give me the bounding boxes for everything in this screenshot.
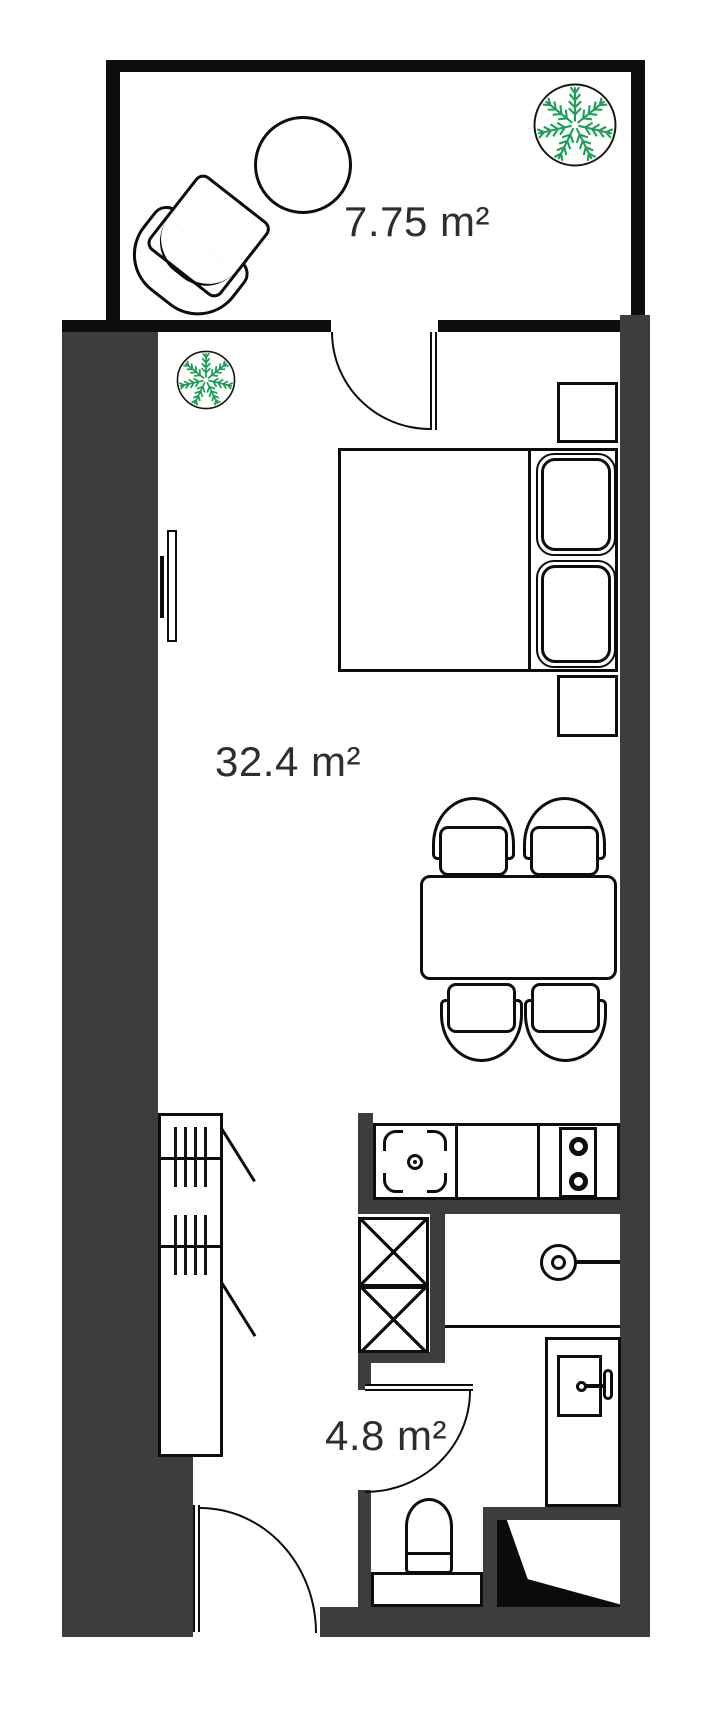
- tv-mount: [160, 556, 164, 618]
- sink-gap: [380, 1151, 388, 1173]
- dining-table: [420, 875, 617, 980]
- shower-wall-left: [483, 1507, 497, 1607]
- sink-drain-dot: [413, 1160, 417, 1164]
- chair: [440, 981, 523, 1062]
- armchair: [119, 168, 280, 333]
- vanity-edge: [445, 1325, 620, 1328]
- left-wall-entry-block: [158, 1457, 193, 1637]
- burner-icon: [569, 1137, 588, 1156]
- bed-headboard-divider: [528, 448, 531, 672]
- chair: [524, 981, 607, 1062]
- potted-plant-icon: [531, 81, 619, 169]
- balcony-right-wall: [631, 60, 645, 315]
- wardrobe-door-swing: [220, 1128, 255, 1182]
- entrance-door-leaf: [193, 1505, 200, 1632]
- washbasin-faucet: [575, 1260, 620, 1264]
- kitchen-wall-stub: [358, 1113, 373, 1203]
- cabinet-handle-bar: [603, 1369, 613, 1400]
- top-wall-right-segment: [438, 320, 620, 332]
- chair: [523, 797, 606, 878]
- shower-wall-top: [483, 1507, 620, 1520]
- shower: [497, 1520, 620, 1607]
- living-room-area-label: 32.4 m²: [215, 738, 361, 786]
- entrance-door-swing-arc: [200, 1507, 317, 1633]
- ventilation-shaft: [358, 1286, 429, 1353]
- bathroom-door-leaf: [365, 1384, 473, 1391]
- balcony-top-wall: [106, 60, 645, 72]
- sink-gap: [439, 1151, 447, 1173]
- bathroom-area-label: 4.8 m²: [325, 1412, 447, 1460]
- wardrobe-hangers: [174, 1127, 212, 1187]
- bathroom-left-wall-lower: [358, 1490, 371, 1607]
- left-wall: [62, 332, 158, 1637]
- balcony-door-swing-arc: [331, 332, 430, 430]
- nightstand: [557, 675, 618, 737]
- nightstand: [557, 382, 618, 443]
- counter-divider: [455, 1123, 458, 1200]
- wardrobe-hangers: [174, 1215, 212, 1275]
- toilet-bowl: [405, 1498, 453, 1574]
- chair: [432, 797, 515, 878]
- sink-gap: [403, 1188, 427, 1196]
- balcony-door-leaf: [430, 332, 437, 430]
- pillow: [536, 560, 616, 668]
- toilet-seat-line: [407, 1552, 451, 1555]
- counter-divider: [537, 1123, 540, 1200]
- bathroom-inner-wall-horizontal: [358, 1352, 445, 1363]
- washbasin-drain: [551, 1255, 566, 1270]
- wardrobe-door-swing: [220, 1282, 256, 1337]
- potted-plant-icon: [175, 349, 237, 411]
- bathroom-inner-wall-vertical: [430, 1214, 445, 1363]
- round-table: [254, 116, 352, 214]
- shower-drain-triangle: [497, 1520, 620, 1607]
- pillow: [536, 453, 616, 556]
- balcony-area-label: 7.75 m²: [344, 198, 490, 246]
- floor-plan: 7.75 m² 32.4 m²: [0, 0, 714, 1722]
- burner-icon: [569, 1172, 588, 1191]
- tv: [167, 530, 177, 642]
- toilet-cistern: [371, 1572, 483, 1607]
- top-wall-left-segment: [62, 320, 331, 332]
- ventilation-shaft: [358, 1217, 429, 1287]
- right-wall: [620, 315, 650, 1637]
- sink-gap: [403, 1127, 427, 1135]
- bottom-wall: [320, 1607, 650, 1637]
- balcony-left-wall: [106, 60, 120, 322]
- bathroom-top-wall: [358, 1200, 620, 1214]
